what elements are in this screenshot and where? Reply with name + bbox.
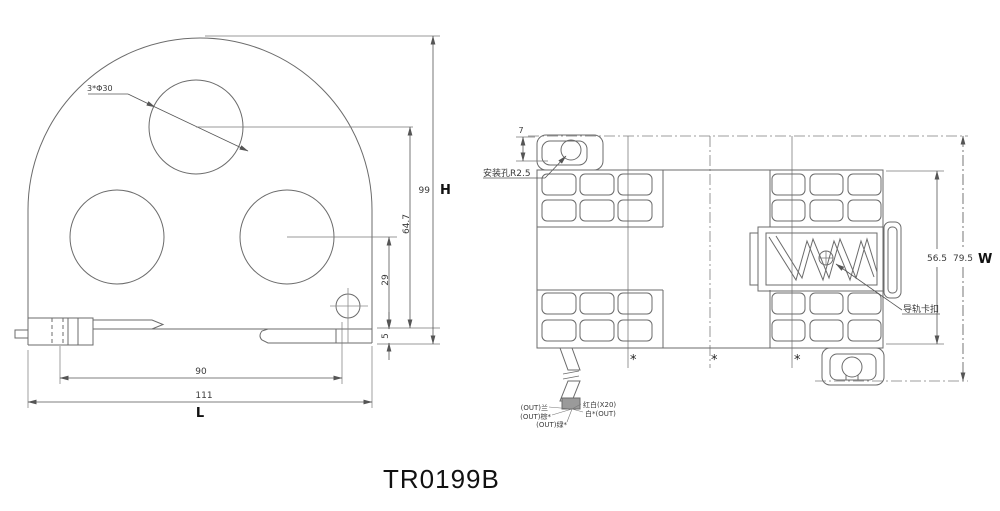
front-left-tab	[15, 330, 28, 338]
part-number-title: TR0199B	[383, 464, 623, 495]
dim-79-5: 79.5	[953, 254, 973, 264]
bottom-lug-slot	[842, 357, 862, 377]
dim-letter-L: L	[196, 406, 204, 421]
front-holes	[70, 80, 334, 284]
side-dimension-lines	[886, 136, 963, 381]
hole-bottom-left	[70, 190, 164, 284]
asterisk-1: *	[630, 353, 637, 368]
front-view: 3*Φ30 99 H 64.7 29 5 90 111 L	[15, 36, 451, 421]
mount-hole-label: 安装孔R2.5	[483, 167, 531, 179]
dim-7: 7	[518, 126, 523, 135]
dim-letter-H: H	[440, 183, 451, 198]
dim-56-5: 56.5	[927, 254, 947, 264]
dim-99: 99	[419, 186, 431, 196]
rail-clip-left-tab	[750, 233, 758, 285]
wire-label-white: 白*(OUT)	[585, 409, 616, 418]
front-body-outline	[28, 38, 372, 345]
rail-clip-right-tab	[884, 222, 901, 298]
dim-90: 90	[195, 367, 207, 377]
asterisk-2: *	[711, 353, 718, 368]
rail-clip-assembly	[750, 222, 901, 298]
front-plate-hook	[260, 329, 372, 343]
drawing-sheet: 3*Φ30 99 H 64.7 29 5 90 111 L	[0, 0, 1000, 511]
dim-29: 29	[381, 274, 391, 286]
wire-label-red-white: 红白(X20)	[583, 400, 616, 409]
technical-drawing-canvas: 3*Φ30 99 H 64.7 29 5 90 111 L	[0, 0, 1000, 511]
holes-diameter-label: 3*Φ30	[87, 84, 113, 93]
wire-label-green: (OUT)绿*	[536, 420, 567, 429]
bottom-lug	[822, 348, 884, 385]
mounting-lug	[537, 135, 603, 170]
front-din-foot	[15, 288, 372, 345]
mounting-hole	[561, 140, 581, 160]
side-view: 7 安装孔R2.5 导轨卡扣 56.5 79.5 W * * * (OUT)兰 …	[483, 126, 992, 429]
front-hole-leader	[88, 94, 248, 151]
dim-111: 111	[195, 391, 212, 401]
dim-64-7: 64.7	[402, 214, 412, 234]
output-wire	[549, 348, 583, 422]
rail-clip-label: 导轨卡扣	[903, 303, 939, 315]
dim-5: 5	[381, 333, 391, 339]
wire-end	[562, 398, 580, 409]
dim-letter-W: W	[978, 252, 992, 267]
wire-label-blue: (OUT)兰	[521, 403, 548, 412]
side-dim-7	[516, 137, 548, 161]
wire-label-brown: (OUT)棕*	[520, 412, 551, 421]
front-latch-bar	[93, 320, 163, 329]
asterisk-3: *	[794, 353, 801, 368]
